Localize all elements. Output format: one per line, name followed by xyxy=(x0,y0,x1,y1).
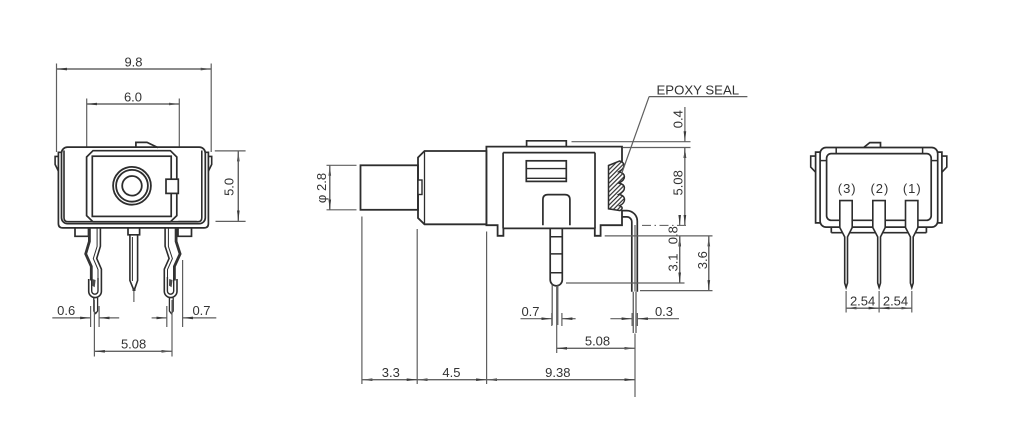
svg-text:0.8: 0.8 xyxy=(666,226,681,244)
svg-text:4.5: 4.5 xyxy=(442,365,460,380)
svg-text:EPOXY SEAL: EPOXY SEAL xyxy=(657,83,740,98)
svg-text:5.08: 5.08 xyxy=(670,170,685,195)
svg-text:9.38: 9.38 xyxy=(545,365,570,380)
svg-text:0.4: 0.4 xyxy=(670,110,685,128)
svg-text:φ 2.8: φ 2.8 xyxy=(314,173,329,203)
svg-text:0.6: 0.6 xyxy=(57,303,75,318)
svg-text:0.3: 0.3 xyxy=(655,304,673,319)
svg-text:9.8: 9.8 xyxy=(124,55,142,70)
svg-text:0.7: 0.7 xyxy=(192,303,210,318)
svg-text:3.1: 3.1 xyxy=(666,253,681,271)
svg-text:2.54: 2.54 xyxy=(883,293,908,308)
svg-text:5.08: 5.08 xyxy=(121,337,146,352)
svg-text:6.0: 6.0 xyxy=(124,90,142,105)
svg-text:(3): (3) xyxy=(838,181,857,196)
svg-text:3.3: 3.3 xyxy=(382,365,400,380)
svg-text:5.0: 5.0 xyxy=(222,178,237,196)
svg-text:3.6: 3.6 xyxy=(695,251,710,269)
svg-text:(2): (2) xyxy=(870,181,889,196)
svg-text:0.7: 0.7 xyxy=(521,304,539,319)
svg-text:2.54: 2.54 xyxy=(850,293,875,308)
svg-text:5.08: 5.08 xyxy=(585,334,610,349)
svg-text:(1): (1) xyxy=(903,181,922,196)
